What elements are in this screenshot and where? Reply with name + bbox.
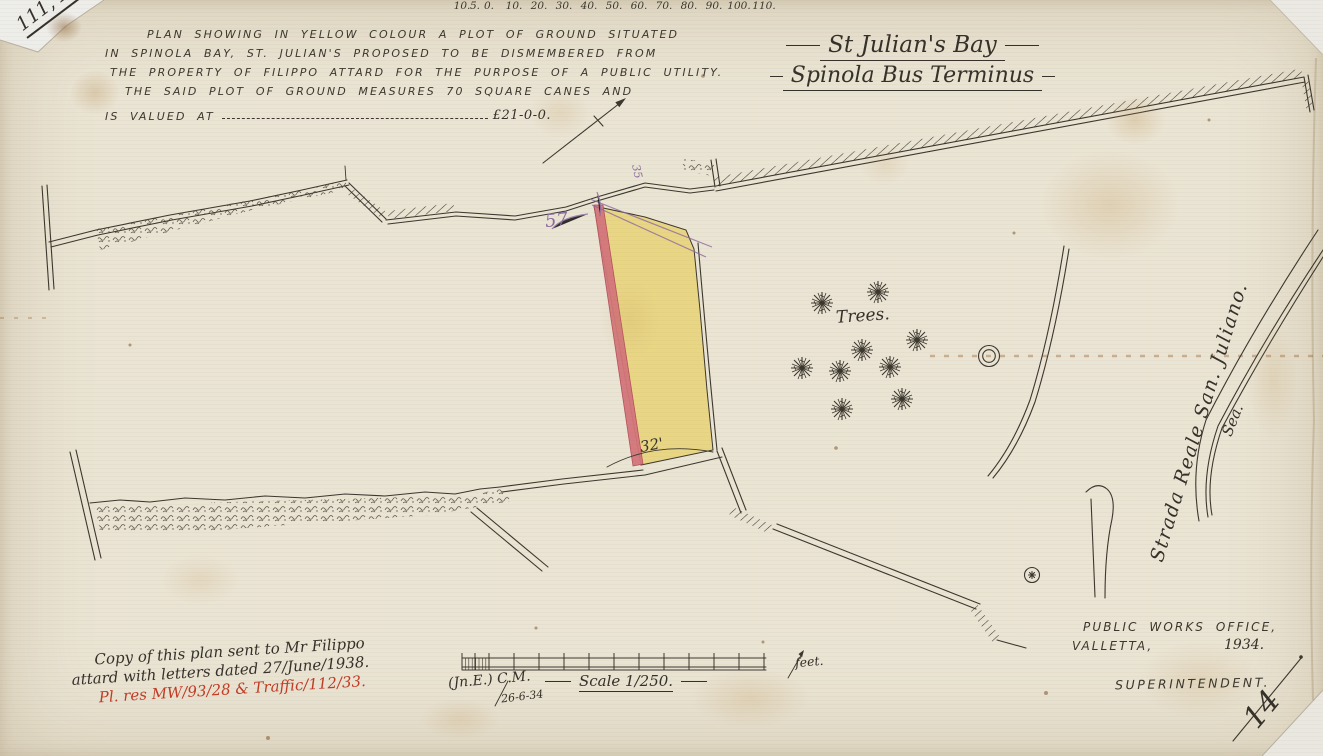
description-line: IN SPINOLA BAY, ST. JULIAN'S PROPOSED TO… — [105, 47, 551, 66]
coastline-upper-left — [42, 166, 454, 290]
scalebar-tick: 80. — [676, 0, 702, 12]
superintendent-label: SUPERINTENDENT. — [1115, 675, 1270, 693]
scalebar-tick: 100. — [726, 0, 752, 12]
dashed-leader — [222, 118, 488, 119]
description-line: PLAN SHOWING IN YELLOW COLOUR A PLOT OF … — [105, 28, 551, 47]
description-line-value: IS VALUED AT £21-0-0. — [105, 104, 551, 123]
scale-dash — [681, 681, 707, 682]
office-line-1: PUBLIC WORKS OFFICE, — [1083, 620, 1277, 634]
scalebar-tick: 50. — [601, 0, 627, 12]
tree-icon — [851, 339, 873, 361]
scalebar-tick: 90. — [701, 0, 727, 12]
north-arrow-icon — [543, 98, 626, 163]
dimension-57: 57 — [544, 209, 569, 232]
description-line: THE PROPERTY OF FILIPPO ATTARD FOR THE P… — [105, 66, 551, 85]
scalebar-label-row: Scale 1/250. — [545, 672, 707, 692]
scalebar-tick: 70. — [651, 0, 677, 12]
tree-icon — [891, 388, 913, 410]
scalebar-tick: 20. — [526, 0, 552, 12]
scalebar-tick: 0. — [476, 0, 502, 12]
valued-at-label: IS VALUED AT — [105, 110, 215, 123]
description-block: PLAN SHOWING IN YELLOW COLOUR A PLOT OF … — [105, 28, 551, 123]
scalebar-tick: 60. — [626, 0, 652, 12]
title-dash — [1005, 45, 1039, 46]
tree-icon — [867, 281, 889, 303]
valuation-amount: £21-0-0. — [493, 108, 551, 123]
scale-dash — [545, 681, 571, 682]
title-dash — [786, 45, 820, 46]
scalebar-tick: 30. — [551, 0, 577, 12]
scalebar-tick: 10. — [501, 0, 527, 12]
trees-label: Trees. — [835, 304, 890, 328]
scalebar-tick: 110. — [751, 0, 777, 12]
boundary-lower-right — [717, 448, 1026, 648]
misc-symbols — [979, 346, 1040, 583]
title-dash — [770, 76, 783, 77]
title-line-1: St Julian's Bay — [820, 32, 1005, 61]
tree-icon — [791, 357, 813, 379]
title-line-2: Spinola Bus Terminus — [783, 63, 1042, 91]
tree-icon — [906, 329, 928, 351]
plot-parcel — [552, 192, 717, 467]
lamp-symbol — [1025, 568, 1040, 583]
tree-icon — [831, 398, 853, 420]
dimension-35: 35 — [629, 163, 645, 179]
scalebar-tick-labels: 10.5.0.10.20.30.40.50.60.70.80.90.100.11… — [0, 0, 1323, 13]
tree-icon — [811, 292, 833, 314]
plan-document: 111, E. PLAN SHOWING IN YELLOW COLOUR A … — [0, 0, 1323, 756]
coastline-lower-left — [70, 450, 722, 571]
office-year: 1934. — [1224, 637, 1264, 653]
title-block: St Julian's Bay Spinola Bus Terminus — [770, 32, 1055, 91]
title-dash — [1042, 76, 1055, 77]
office-line-2: VALLETTA, — [1072, 639, 1153, 653]
scale-label: Scale 1/250. — [579, 672, 673, 692]
description-line: THE SAID PLOT OF GROUND MEASURES 70 SQUA… — [105, 85, 551, 104]
tree-icon — [829, 360, 851, 382]
scalebar-tick: 40. — [576, 0, 602, 12]
scalebar-unit: feet. — [794, 653, 824, 670]
tree-icon — [879, 356, 901, 378]
trees-layer — [791, 281, 928, 420]
